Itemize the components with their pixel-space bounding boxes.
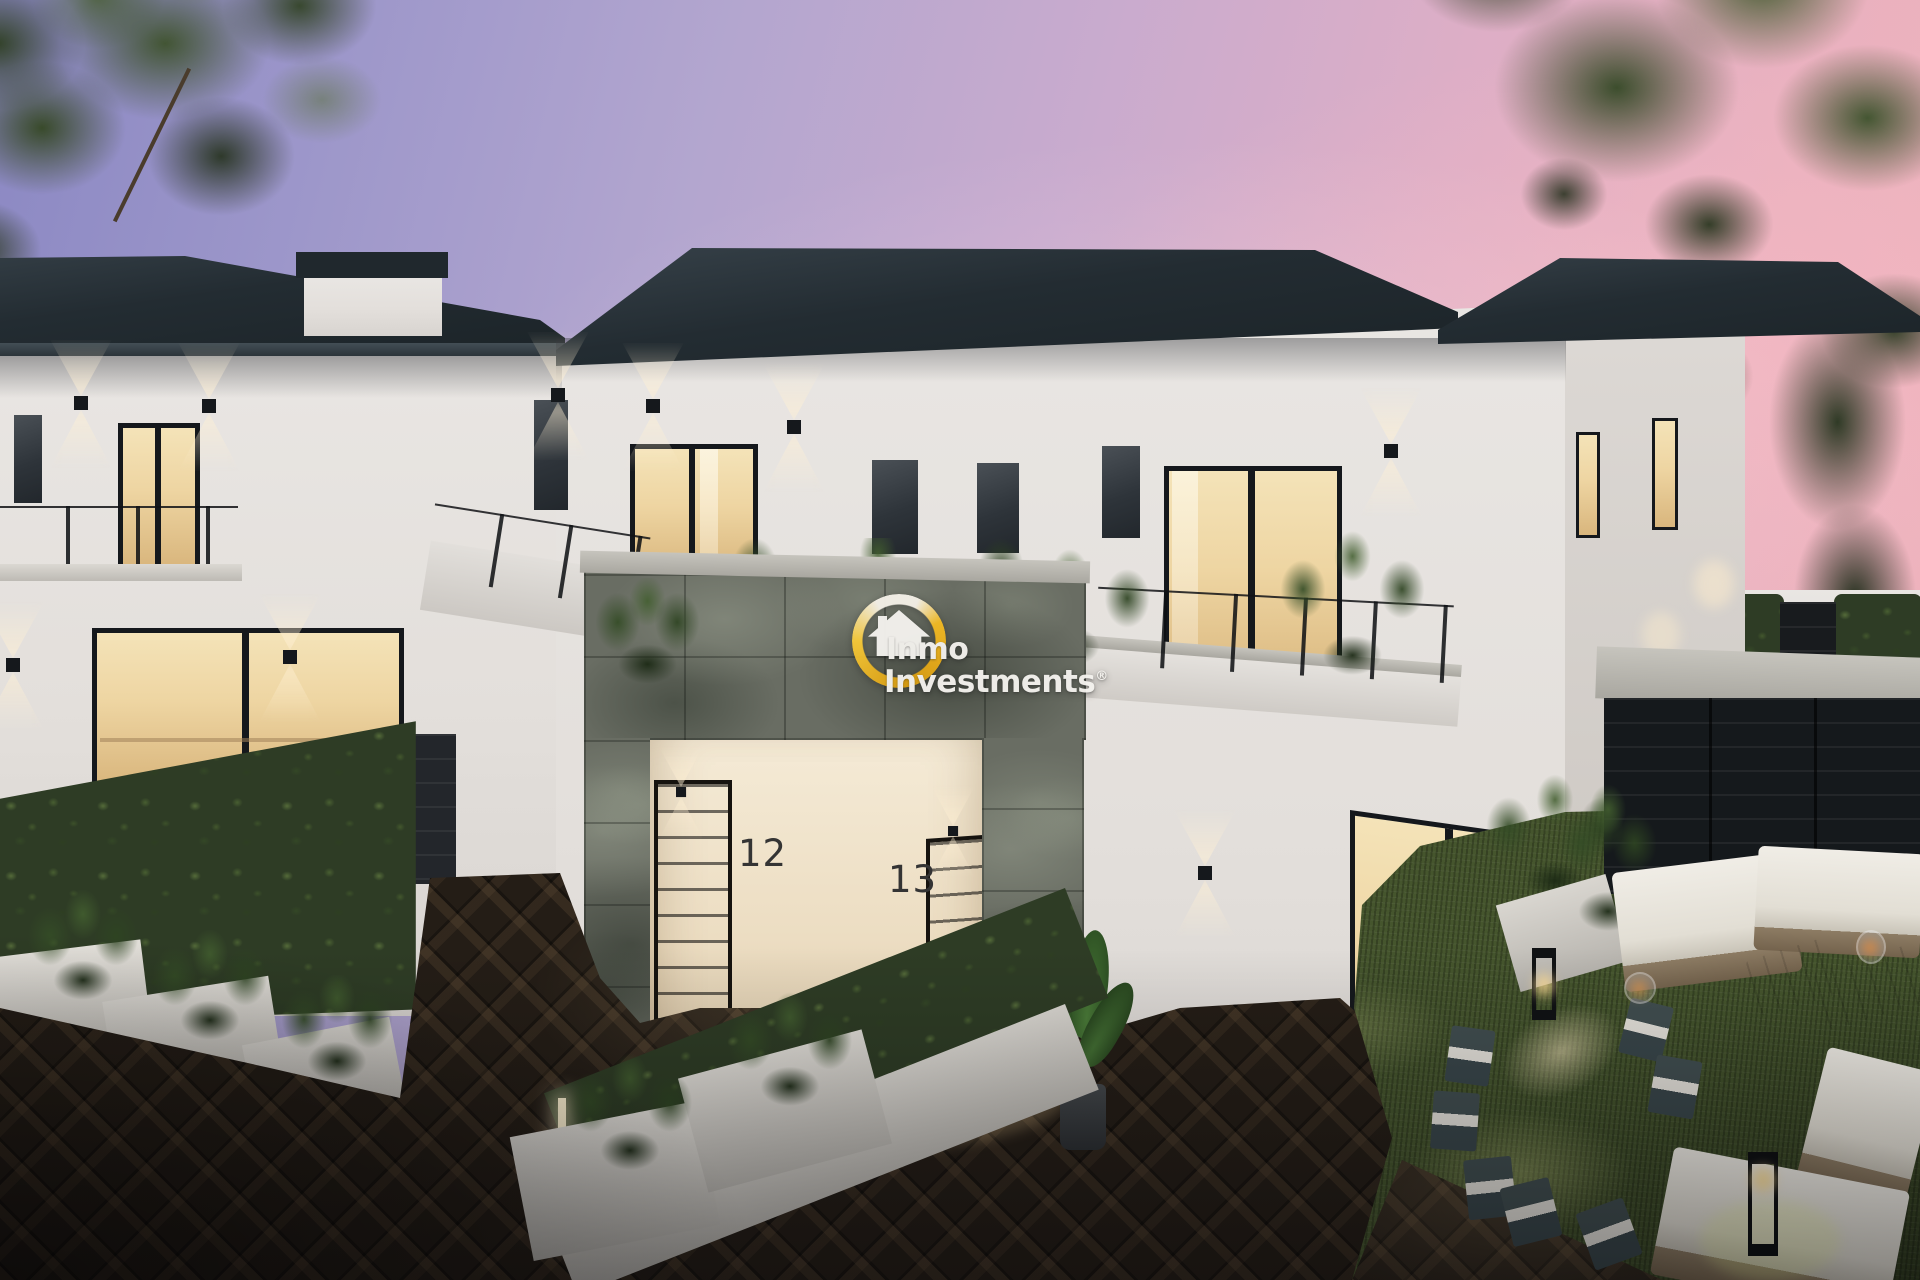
sconce-body	[676, 787, 686, 797]
entry-planter-fern-1	[540, 1052, 720, 1172]
sconce-body	[283, 650, 297, 664]
logo-text-line1: Inmo	[886, 632, 968, 667]
logo-brand-line1: Inmo	[886, 632, 968, 667]
glass-lantern-1	[1624, 972, 1656, 1004]
right-sofa	[1753, 846, 1920, 959]
left-villa-narrow-window	[14, 415, 42, 503]
left-villa-balcony-slab	[0, 564, 242, 581]
right-small-window	[1102, 446, 1140, 538]
side-lit-window-2	[1652, 418, 1678, 530]
glass-lantern-2	[1856, 930, 1886, 964]
boundary-hedge-right	[1834, 594, 1920, 662]
registered-mark: ®	[1095, 669, 1108, 684]
sconce-body	[6, 658, 20, 672]
floor-lantern	[1748, 1152, 1778, 1256]
balcony-plants	[1240, 520, 1465, 685]
dining-chair-2	[1430, 1090, 1480, 1151]
lantern-core-glow	[1535, 974, 1553, 996]
entry-planter-fern-2	[700, 992, 880, 1107]
inmo-investments-watermark: Inmo Investments®	[850, 584, 1110, 714]
render-stage: 12 13	[0, 0, 1920, 1280]
sconce-body	[551, 388, 565, 402]
sconce-body	[787, 420, 801, 434]
house-number-12: 12	[738, 832, 787, 875]
sconce-body	[948, 826, 958, 836]
stone-front-fern	[580, 578, 715, 683]
table-lantern	[1532, 948, 1556, 1020]
side-wall-sconce-glow	[1694, 560, 1734, 608]
lantern-core-glow	[1752, 1168, 1774, 1192]
candle-glow	[1633, 983, 1645, 995]
house-number-13: 13	[888, 858, 937, 901]
side-lit-window-1	[1576, 432, 1600, 538]
dining-chair-1	[1444, 1025, 1495, 1087]
left-planter-fern-3	[262, 975, 412, 1080]
logo-text-line2: Investments®	[884, 664, 1108, 700]
sconce-body	[646, 399, 660, 413]
sconce-body	[74, 396, 88, 410]
sconce-light-up	[930, 786, 976, 826]
left-villa-chimney	[304, 276, 442, 336]
sconce-body	[1384, 444, 1398, 458]
logo-chimney-icon	[878, 616, 887, 632]
left-villa-balcony-glass	[0, 506, 238, 570]
sconce-body	[1198, 866, 1212, 880]
sconce-body	[202, 399, 216, 413]
left-villa-chimney-cap	[296, 252, 448, 278]
logo-brand-line2: Investments	[884, 664, 1095, 700]
candle-glow	[1864, 942, 1876, 954]
